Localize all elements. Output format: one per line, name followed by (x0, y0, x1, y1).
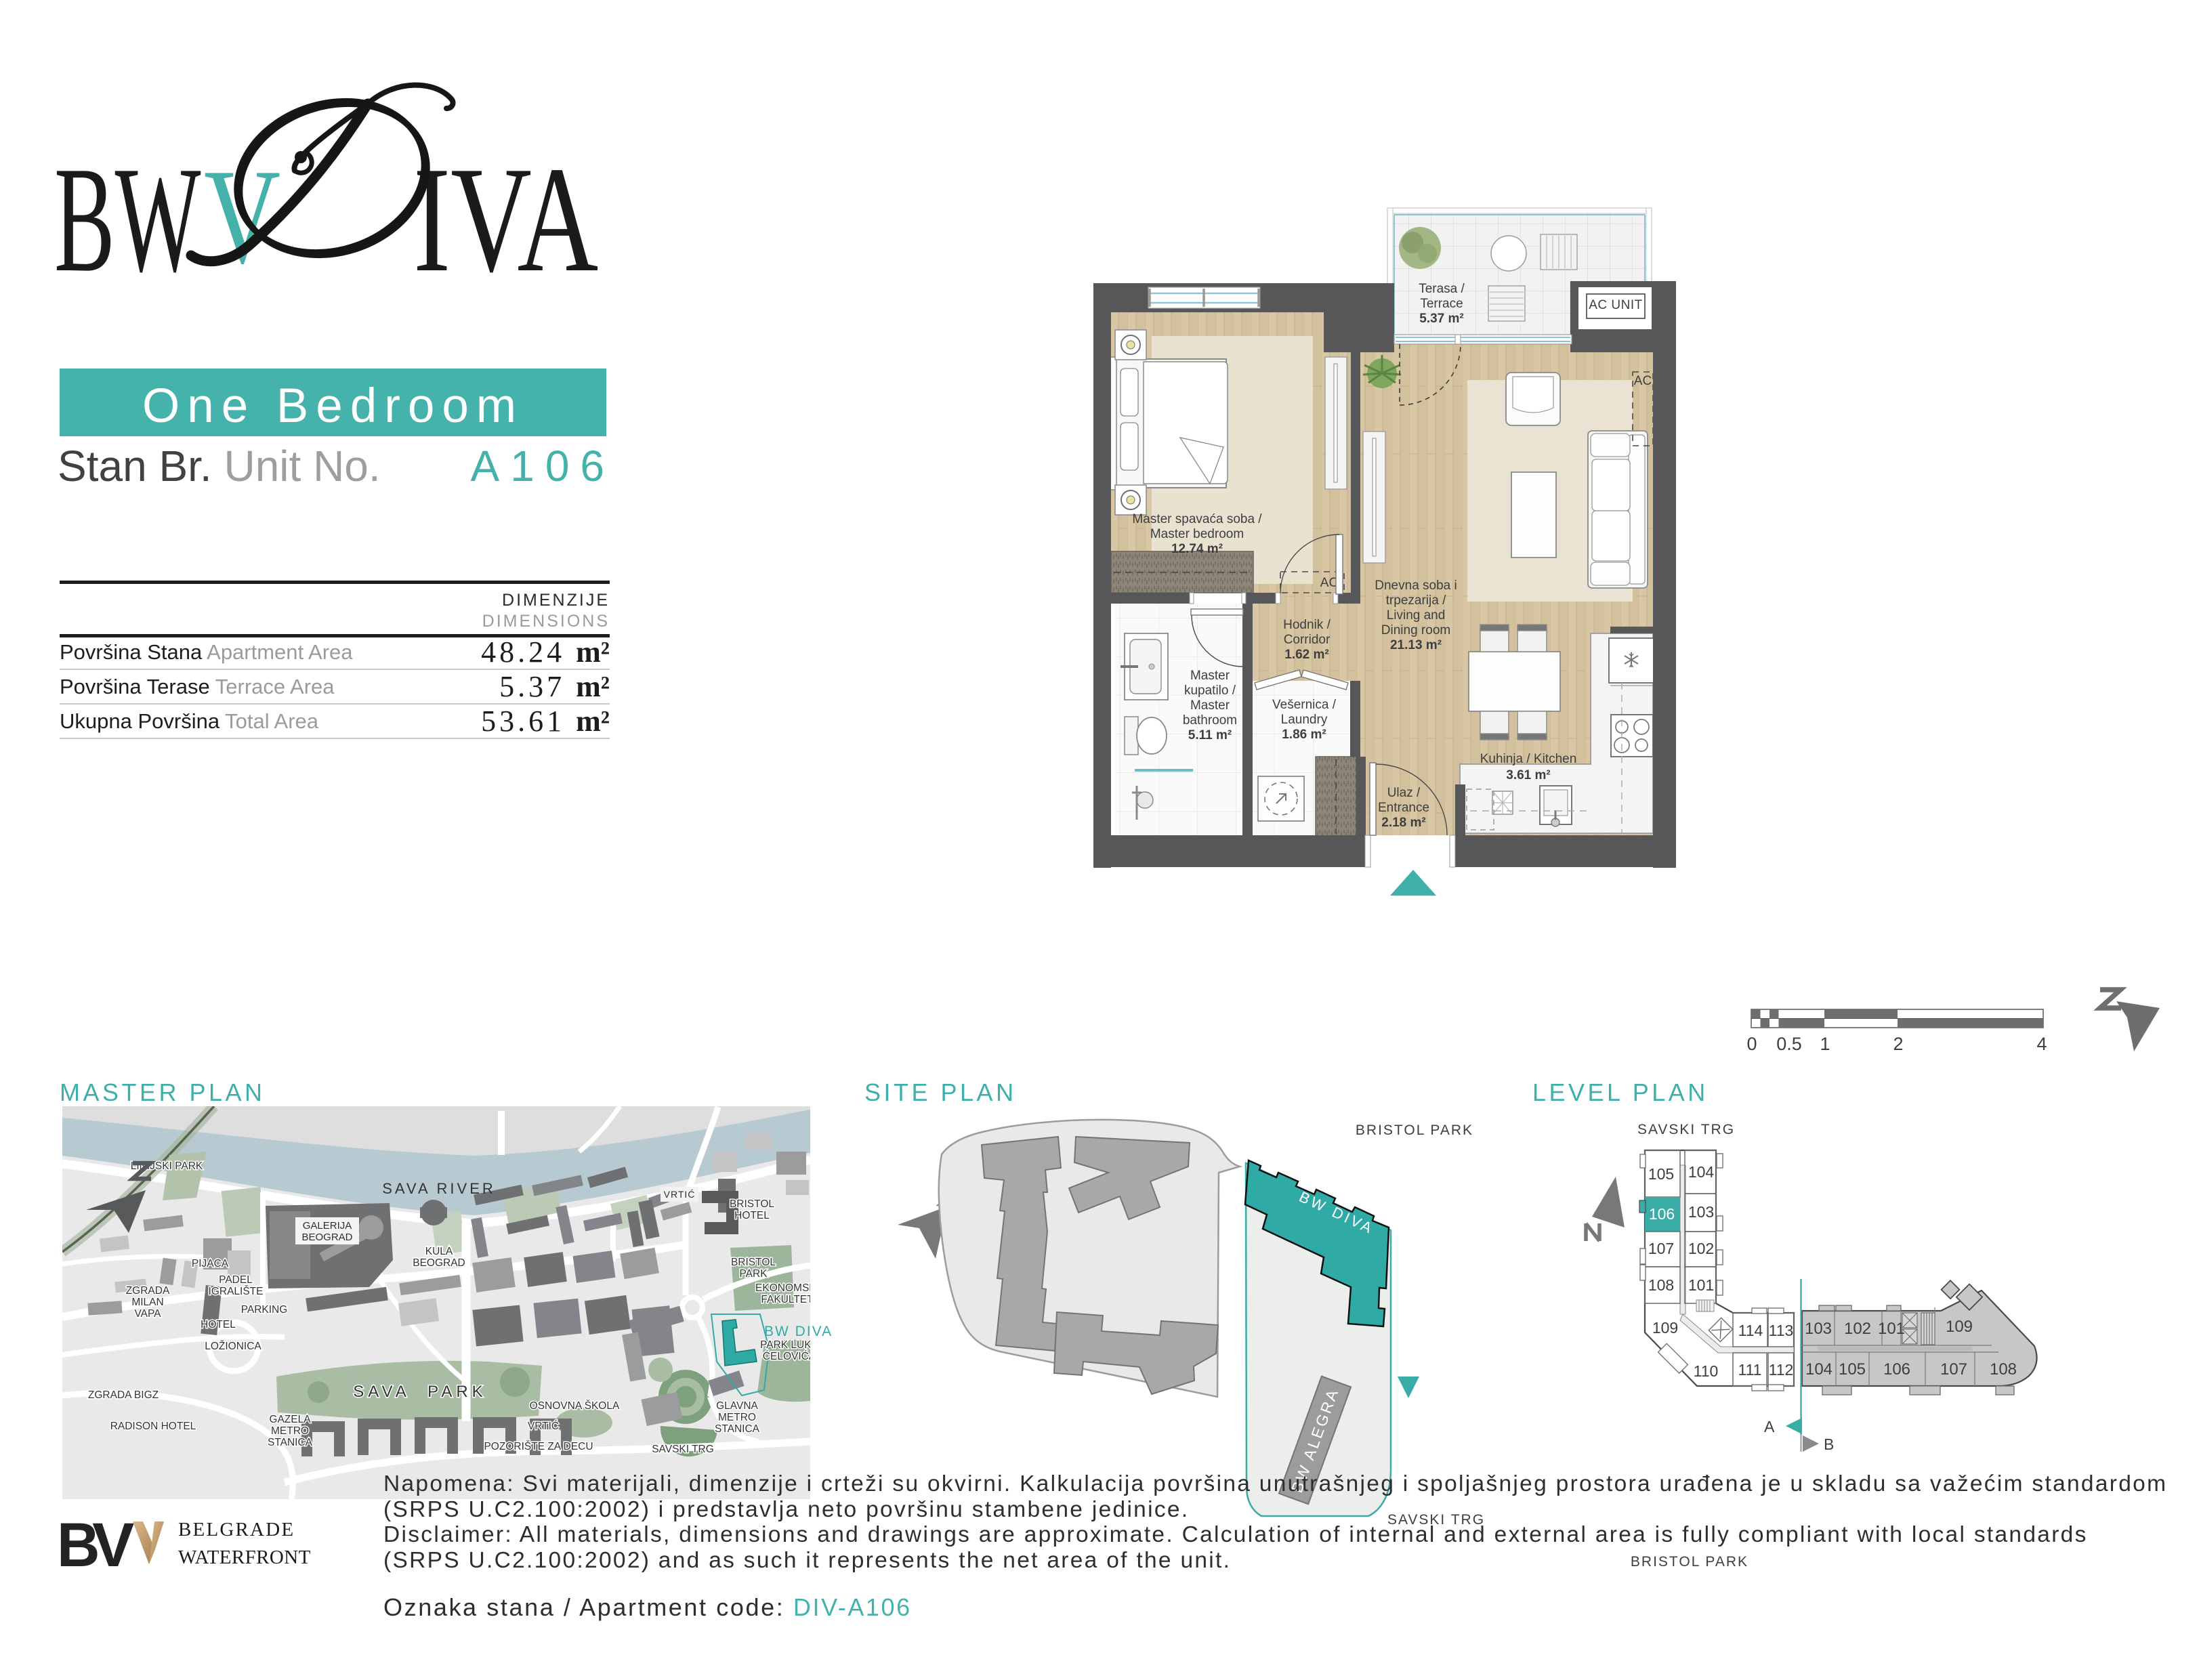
svg-text:Master bedroom: Master bedroom (1150, 527, 1244, 541)
svg-text:SAVA PARK: SAVA PARK (353, 1383, 486, 1401)
svg-text:Kuhinja / Kitchen: Kuhinja / Kitchen (1480, 752, 1577, 766)
svg-text:0.5: 0.5 (1776, 1034, 1802, 1054)
svg-text:Dining room: Dining room (1381, 623, 1450, 637)
svg-text:AC: AC (1320, 576, 1338, 590)
svg-text:109: 109 (1652, 1319, 1678, 1337)
svg-text:MASTER PLAN: MASTER PLAN (60, 1078, 266, 1106)
svg-text:113: 113 (1769, 1322, 1794, 1339)
svg-text:102: 102 (1688, 1240, 1714, 1257)
svg-text:VRTIĆ: VRTIĆ (528, 1421, 559, 1432)
svg-text:4: 4 (2036, 1034, 2047, 1054)
svg-text:5.37 m²: 5.37 m² (1419, 312, 1463, 326)
svg-text:12.74 m²: 12.74 m² (1171, 542, 1223, 556)
svg-text:BEOGRAD: BEOGRAD (301, 1232, 352, 1243)
svg-text:B: B (1824, 1435, 1834, 1453)
svg-text:21.13 m²: 21.13 m² (1390, 638, 1442, 652)
svg-text:PADEL: PADEL (219, 1274, 253, 1286)
svg-text:HOTEL: HOTEL (734, 1210, 770, 1221)
svg-text:101: 101 (1688, 1276, 1714, 1294)
svg-text:1: 1 (1820, 1034, 1830, 1054)
svg-text:114: 114 (1738, 1322, 1763, 1339)
svg-text:STANICA: STANICA (268, 1437, 313, 1448)
svg-text:Vešernica /: Vešernica / (1272, 698, 1337, 712)
svg-text:SITE PLAN: SITE PLAN (864, 1078, 1017, 1106)
svg-text:SAVA RIVER: SAVA RIVER (382, 1180, 496, 1197)
svg-text:GAZELA: GAZELA (269, 1414, 311, 1425)
svg-text:ĆELOVIĆA: ĆELOVIĆA (763, 1351, 816, 1362)
svg-text:108: 108 (1648, 1276, 1674, 1294)
svg-text:1.62 m²: 1.62 m² (1284, 648, 1328, 662)
svg-text:Master: Master (1190, 698, 1230, 713)
svg-text:BELGRADE: BELGRADE (178, 1519, 295, 1540)
svg-text:PARKING: PARKING (241, 1304, 288, 1316)
svg-text:109: 109 (1946, 1318, 1973, 1336)
svg-text:LOŽIONICA: LOŽIONICA (205, 1341, 261, 1352)
svg-text:2: 2 (1893, 1034, 1903, 1054)
svg-text:PARK LUKE: PARK LUKE (760, 1339, 818, 1351)
svg-text:SAVSKI TRG: SAVSKI TRG (652, 1444, 714, 1455)
svg-text:kupatilo /: kupatilo / (1184, 684, 1236, 698)
svg-text:IVA: IVA (413, 135, 598, 303)
svg-text:RADISON HOTEL: RADISON HOTEL (110, 1421, 196, 1432)
svg-text:1.86 m²: 1.86 m² (1282, 728, 1326, 742)
svg-text:3.61 m²: 3.61 m² (1506, 768, 1550, 782)
svg-text:AC: AC (1634, 374, 1652, 388)
svg-text:ZGRADA BIGZ: ZGRADA BIGZ (88, 1389, 159, 1401)
svg-text:EKONOMSKI: EKONOMSKI (755, 1282, 819, 1294)
svg-text:110: 110 (1694, 1362, 1719, 1380)
svg-text:106: 106 (1649, 1205, 1675, 1223)
svg-text:Terrace: Terrace (1420, 297, 1463, 311)
svg-text:PIJACA: PIJACA (192, 1258, 229, 1269)
svg-text:112: 112 (1769, 1361, 1794, 1379)
svg-text:111: 111 (1738, 1361, 1762, 1379)
svg-text:BEOGRAD: BEOGRAD (413, 1257, 465, 1269)
svg-text:0: 0 (1746, 1034, 1757, 1054)
svg-text:A: A (1764, 1418, 1775, 1435)
svg-text:VAPA: VAPA (134, 1308, 161, 1320)
svg-text:FAKULTET: FAKULTET (761, 1294, 814, 1305)
svg-text:5.11 m²: 5.11 m² (1188, 728, 1232, 742)
svg-text:103: 103 (1805, 1320, 1832, 1338)
svg-text:103: 103 (1688, 1203, 1714, 1221)
svg-text:Laundry: Laundry (1281, 713, 1328, 727)
svg-text:107: 107 (1940, 1360, 1967, 1379)
svg-text:BRISTOL PARK: BRISTOL PARK (1356, 1122, 1473, 1138)
svg-text:BW: BW (54, 135, 201, 303)
svg-text:Terasa /: Terasa / (1419, 282, 1465, 296)
svg-text:GALERIJA: GALERIJA (303, 1220, 352, 1232)
svg-text:BW DIVA: BW DIVA (764, 1324, 833, 1339)
svg-text:107: 107 (1648, 1240, 1674, 1257)
svg-text:108: 108 (1990, 1360, 2017, 1379)
svg-text:WATERFRONT: WATERFRONT (178, 1547, 311, 1568)
svg-text:ZGRADA: ZGRADA (126, 1285, 170, 1297)
svg-text:105: 105 (1839, 1360, 1866, 1379)
svg-text:trpezarija /: trpezarija / (1386, 593, 1446, 608)
svg-text:BRISTOL: BRISTOL (730, 1198, 774, 1210)
svg-text:Living and: Living and (1387, 608, 1446, 623)
svg-text:106: 106 (1883, 1360, 1910, 1379)
svg-text:V: V (92, 1511, 134, 1580)
svg-text:METRO: METRO (271, 1425, 309, 1437)
svg-text:Master spavaća soba /: Master spavaća soba / (1132, 512, 1262, 526)
svg-text:104: 104 (1688, 1163, 1715, 1181)
svg-text:Dnevna soba i: Dnevna soba i (1375, 579, 1457, 593)
svg-text:104: 104 (1805, 1360, 1832, 1379)
svg-text:BRISTOL: BRISTOL (731, 1257, 776, 1268)
svg-text:STANICA: STANICA (715, 1423, 760, 1435)
svg-text:2.18 m²: 2.18 m² (1381, 816, 1425, 830)
svg-text:AC UNIT: AC UNIT (1589, 298, 1643, 312)
svg-text:LEVEL PLAN: LEVEL PLAN (1532, 1078, 1709, 1106)
svg-text:VRTIĆ: VRTIĆ (664, 1189, 696, 1200)
svg-text:Corridor: Corridor (1284, 633, 1331, 647)
svg-text:Master: Master (1190, 669, 1230, 683)
svg-text:Hodnik /: Hodnik / (1283, 618, 1331, 632)
svg-text:105: 105 (1648, 1165, 1674, 1183)
svg-text:101: 101 (1878, 1320, 1905, 1338)
svg-text:102: 102 (1844, 1320, 1871, 1338)
svg-text:SAVSKI TRG: SAVSKI TRG (1637, 1122, 1735, 1137)
svg-text:HOTEL: HOTEL (201, 1319, 236, 1330)
svg-text:Entrance: Entrance (1378, 801, 1429, 815)
svg-text:PARK: PARK (739, 1268, 768, 1280)
svg-text:IGRALIŠTE: IGRALIŠTE (209, 1286, 264, 1297)
svg-text:GLAVNA: GLAVNA (716, 1400, 758, 1412)
svg-text:METRO: METRO (718, 1412, 756, 1423)
svg-text:POZORIŠTE ZA DECU: POZORIŠTE ZA DECU (484, 1441, 593, 1452)
svg-text:Ulaz /: Ulaz / (1387, 786, 1421, 800)
svg-text:MILAN: MILAN (131, 1297, 163, 1308)
svg-text:bathroom: bathroom (1183, 713, 1237, 728)
svg-text:KULA: KULA (425, 1246, 453, 1257)
svg-text:OSNOVNA ŠKOLA: OSNOVNA ŠKOLA (530, 1400, 620, 1412)
